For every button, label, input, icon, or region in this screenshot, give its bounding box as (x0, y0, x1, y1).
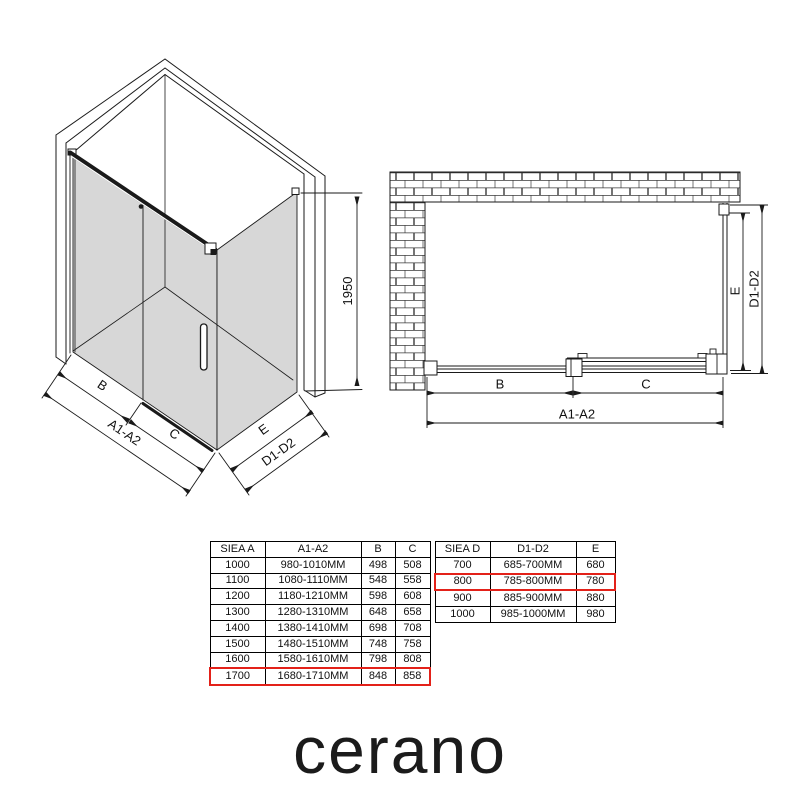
plan-view: B C A1-A2 E D1-D2 (390, 172, 768, 428)
iso-corner-fitting (292, 188, 299, 195)
table-row: 1500 1480-1510MM 748 758 (210, 636, 430, 652)
plan-center-bracket (566, 359, 582, 377)
iso-label-c: C (166, 425, 182, 443)
table-row: 1400 1380-1410MM 698 708 (210, 620, 430, 636)
col-header: SIEA A (210, 542, 265, 558)
table-row: 700 685-700MM 680 (435, 557, 615, 573)
iso-label-d1d2: D1-D2 (259, 435, 298, 469)
plan-dimension-labels: B C A1-A2 E D1-D2 (496, 270, 762, 421)
plan-label-c: C (641, 377, 650, 392)
plan-wall-profile (424, 361, 437, 375)
table-header-row: SIEA A A1-A2 B C (210, 542, 430, 558)
col-header: SIEA D (435, 542, 490, 558)
plan-door-roller (578, 354, 587, 359)
width-size-table: SIEA A A1-A2 B C 1000 980-1010MM 498 508… (209, 541, 431, 686)
plan-label-d1d2: D1-D2 (747, 270, 762, 308)
table-row: 1000 985-1000MM 980 (435, 607, 615, 623)
col-header: D1-D2 (490, 542, 576, 558)
iso-label-height: 1950 (340, 277, 355, 306)
table-header-row: SIEA D D1-D2 E (435, 542, 615, 558)
technical-drawing: B C A1-A2 E D1-D2 1950 (0, 0, 800, 540)
table-row-highlighted: 800 785-800MM 780 (435, 574, 615, 591)
col-header: B (361, 542, 395, 558)
iso-roller (139, 204, 144, 209)
depth-size-table: SIEA D D1-D2 E 700 685-700MM 680 800 785… (434, 541, 616, 623)
plan-brick-wall (390, 172, 740, 390)
plan-end-bracket (706, 354, 727, 374)
iso-label-b: B (95, 377, 111, 394)
iso-label-e: E (255, 421, 271, 438)
table-row: 1300 1280-1310MM 648 658 (210, 605, 430, 621)
plan-label-a1a2: A1-A2 (559, 407, 595, 422)
brand-logo: cerano (0, 712, 800, 788)
iso-label-a1a2: A1-A2 (105, 416, 143, 449)
table-row-highlighted: 1700 1680-1710MM 848 858 (210, 668, 430, 685)
table-row: 1100 1080-1110MM 548 558 (210, 573, 430, 589)
plan-rail-assembly (424, 349, 727, 377)
plan-label-e: E (728, 286, 743, 295)
iso-side-glass (217, 192, 297, 450)
col-header: E (576, 542, 615, 558)
plan-dimensions (427, 205, 768, 428)
col-header: A1-A2 (265, 542, 361, 558)
table-row: 1000 980-1010MM 498 508 (210, 557, 430, 573)
col-header: C (395, 542, 430, 558)
plan-label-b: B (496, 377, 505, 392)
table-row: 1200 1180-1210MM 598 608 (210, 589, 430, 605)
table-row: 1600 1580-1610MM 798 808 (210, 652, 430, 668)
isometric-view: B C A1-A2 E D1-D2 1950 (42, 59, 362, 496)
table-row: 900 885-900MM 880 (435, 590, 615, 606)
iso-door-handle (201, 324, 208, 370)
